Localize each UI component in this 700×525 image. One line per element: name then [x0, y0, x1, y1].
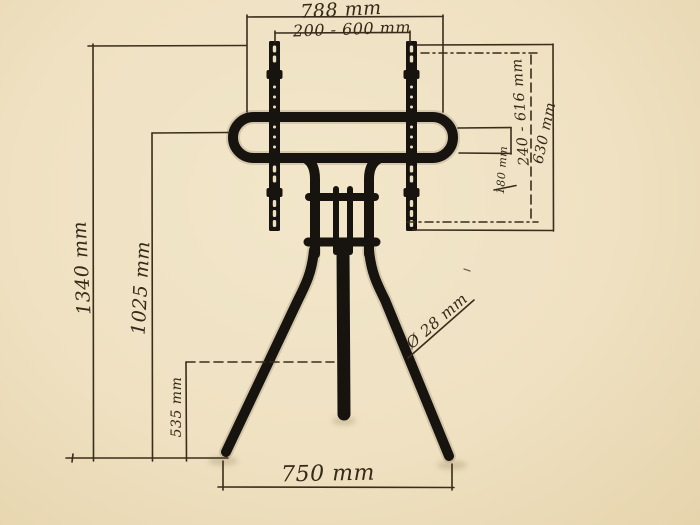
vesa-rails — [267, 41, 420, 231]
dim-total-height-lines — [88, 44, 246, 461]
ground-tick — [72, 454, 73, 462]
stand-frame — [226, 117, 453, 456]
dim-bracket-height-lines — [413, 44, 554, 231]
left-vesa-rail — [267, 41, 283, 231]
rear-center-leg — [343, 250, 344, 414]
right-vesa-rail — [404, 41, 420, 231]
front-right-leg — [369, 250, 449, 456]
tv-stand-technical-drawing — [0, 0, 700, 525]
stray-pen-mark — [464, 269, 470, 271]
dim-mount-height-lines — [152, 133, 229, 462]
sketch-paper: 788 mm 200 - 600 mm 1340 mm 1025 mm 535 … — [0, 0, 700, 525]
dim-label-lower-section-height: 535 mm — [169, 377, 185, 438]
dim-label-base-width: 750 mm — [281, 461, 375, 488]
